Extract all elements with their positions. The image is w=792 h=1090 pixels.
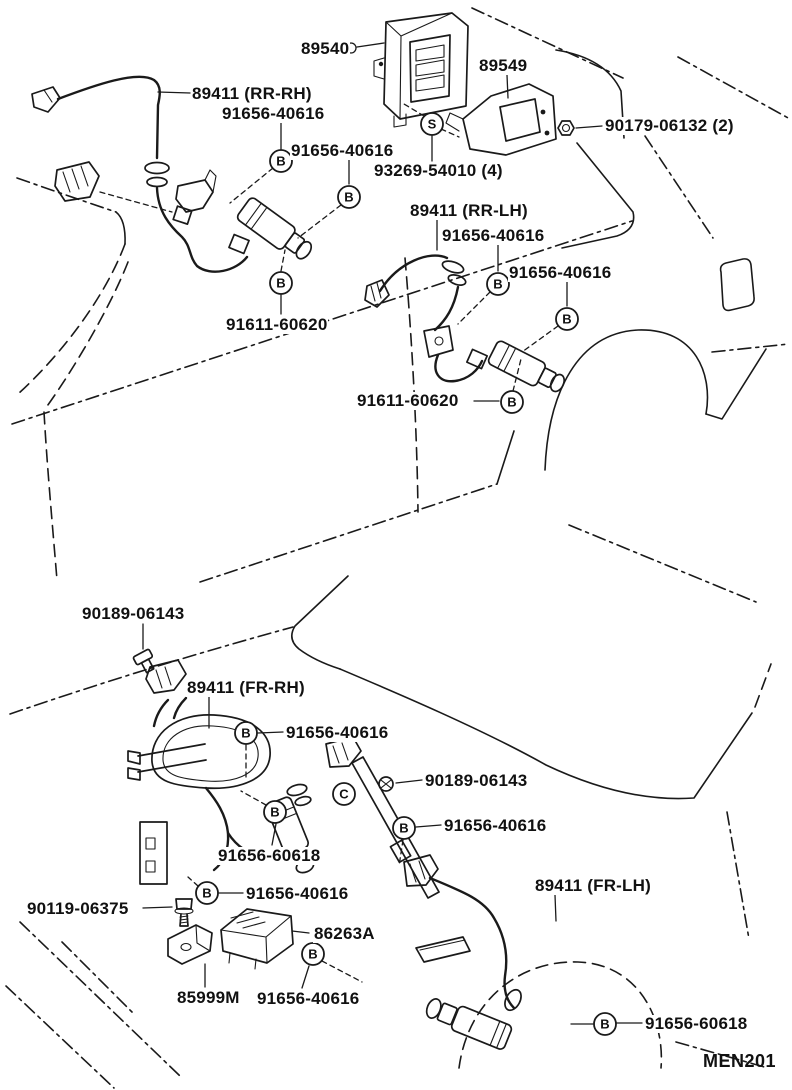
part-label: 89411 (RR-LH) [409,202,529,220]
part-label: 91656-60618 [644,1015,748,1033]
part-label: 91656-40616 [290,142,394,160]
part-label: 91656-60618 [217,847,321,865]
part-label: 90189-06143 [424,772,528,790]
page-code: MEN201 [703,1051,776,1072]
part-label: 91656-40616 [508,264,612,282]
part-label: 89411 (RR-RH) [191,85,313,103]
part-label: 93269-54010 (4) [373,162,504,180]
part-label: 89411 (FR-LH) [534,877,652,895]
part-label: 85999M [176,989,241,1007]
part-label: 89540 [300,40,350,58]
part-label: 91656-40616 [245,885,349,903]
part-label: 86263A [313,925,376,943]
part-label: 89411 (FR-RH) [186,679,306,697]
part-label: 91656-40616 [441,227,545,245]
part-label: 91656-40616 [285,724,389,742]
part-label: 89549 [478,57,528,75]
part-label: 90179-06132 (2) [604,117,735,135]
part-label: 91656-40616 [221,105,325,123]
part-label: 91656-40616 [256,990,360,1008]
part-label: 91611-60620 [225,316,328,334]
part-label: 91656-40616 [443,817,547,835]
part-label: 91611-60620 [356,392,459,410]
labels-layer: 895408954990179-06132 (2)89411 (RR-RH)91… [0,0,792,1090]
parts-diagram-page: BBBSBBBBBCBBBB 895408954990179-06132 (2)… [0,0,792,1090]
part-label: 90189-06143 [81,605,185,623]
part-label: 90119-06375 [26,900,129,918]
